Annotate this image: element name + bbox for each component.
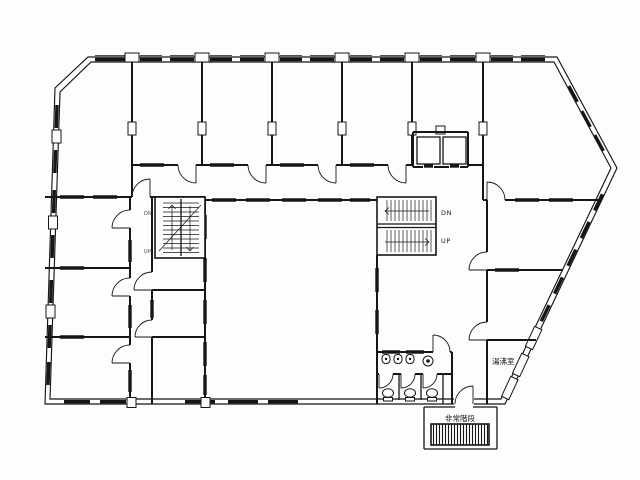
elevator-bank: [413, 126, 468, 167]
emergency-staircase: 非常階段: [424, 407, 497, 449]
left-stair-dn-label: DN: [144, 211, 152, 217]
elevator-car-left: [417, 137, 440, 164]
corridor-walls: [45, 165, 483, 197]
right-stair-dn-label: DN: [441, 209, 452, 217]
right-staircase: DN UP: [377, 197, 452, 255]
toilets: [383, 389, 438, 401]
urinals: [382, 355, 414, 364]
elevator-car-right: [443, 137, 466, 164]
floor-plan-drawing: DN UP DN UP: [0, 0, 640, 480]
toilet-area: [377, 335, 452, 404]
floor-plan-page: DN UP DN UP: [0, 0, 640, 480]
emergency-staircase-label: 非常階段: [445, 413, 475, 423]
right-stair-up-label: UP: [441, 237, 451, 245]
left-stair-up-label: UP: [144, 249, 151, 255]
wash-basin: [423, 356, 433, 366]
left-staircase: DN UP: [144, 197, 205, 258]
kitchenette-label: 湯沸室: [492, 356, 515, 366]
central-room-walls: [205, 197, 377, 404]
emergency-staircase-treads: [431, 424, 489, 445]
